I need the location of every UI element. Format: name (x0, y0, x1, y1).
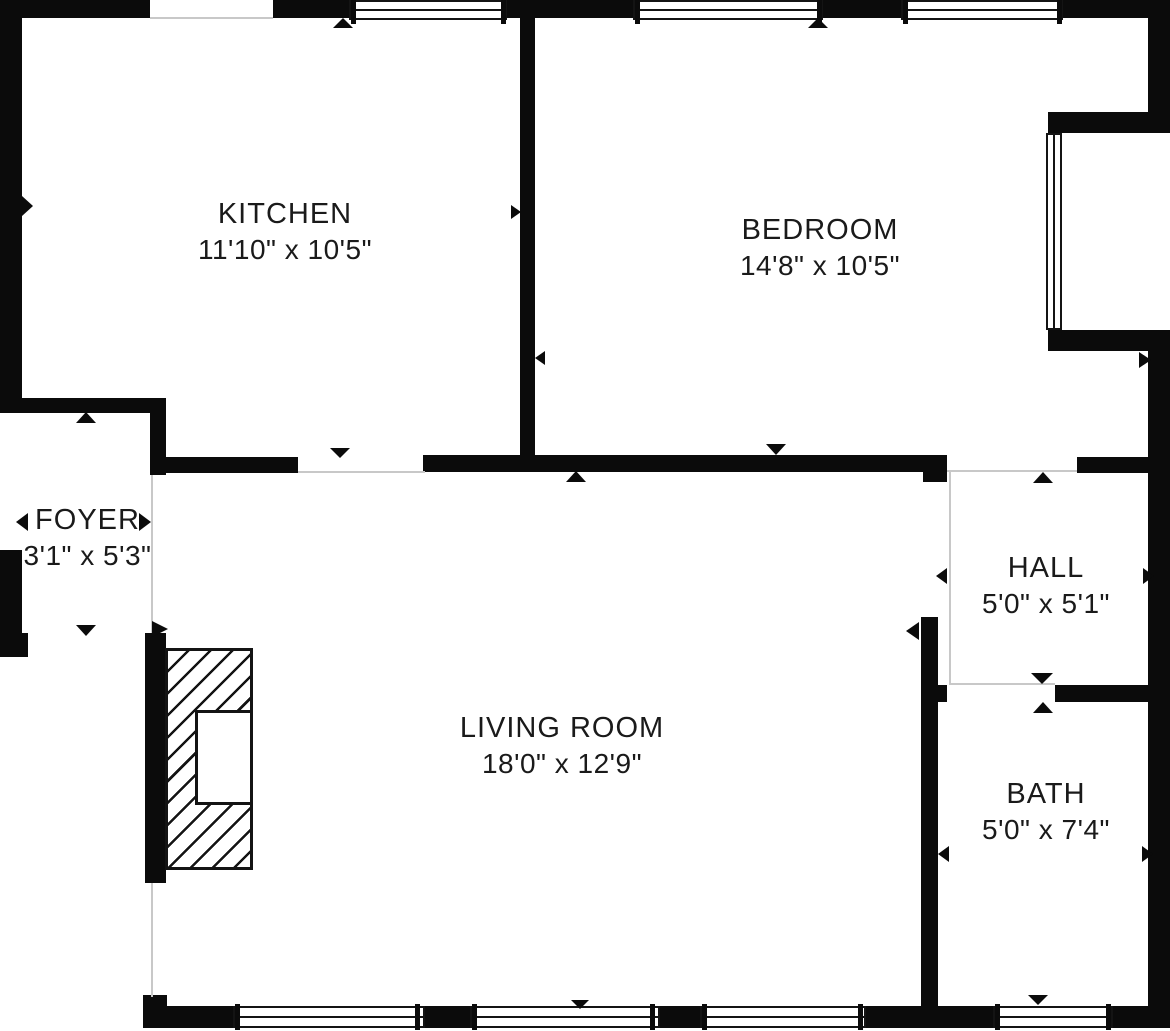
window-post (235, 1004, 240, 1030)
room-label-bedroom: BEDROOM 14'8" x 10'5" (670, 212, 970, 284)
wall-top-1 (0, 0, 150, 18)
boundary-top-gap (150, 17, 273, 19)
wall-kitchen-bedroom-divider (520, 18, 535, 455)
room-label-hall: HALL 5'0" x 5'1" (946, 550, 1146, 622)
threshold-kitchen-living (298, 471, 425, 473)
living-room-dimensions: 18'0" x 12'9" (412, 746, 712, 782)
window-post (415, 1004, 420, 1030)
living-window-2 (470, 1006, 660, 1028)
wall-bath-west (921, 617, 938, 1008)
door-marker-down-icon (766, 444, 786, 455)
foyer-dimensions: 3'1" x 5'3" (0, 538, 175, 574)
door-marker-left-icon (906, 622, 919, 640)
wall-bedroom-bottom-stub (923, 472, 947, 482)
wall-foyer-top (0, 398, 166, 413)
bedroom-window-left (633, 0, 823, 20)
wall-hall-top (1077, 457, 1148, 473)
door-marker-down-icon (1031, 673, 1053, 684)
wall-bottom-4 (866, 1006, 993, 1028)
room-label-bath: BATH 5'0" x 7'4" (946, 776, 1146, 848)
window-mullion (635, 9, 821, 11)
door-marker-up-icon (1033, 472, 1053, 483)
wall-bottom-2 (425, 1006, 470, 1028)
wall-top-2 (273, 0, 349, 18)
door-marker-up-icon (333, 18, 353, 28)
window-post (1057, 0, 1062, 24)
wall-bottom-5 (1113, 1006, 1170, 1028)
window-mullion (351, 9, 505, 11)
door-marker-up-icon (1033, 702, 1053, 713)
door-marker-right-icon (152, 621, 168, 637)
window-post (501, 0, 506, 24)
bath-window (993, 1006, 1113, 1028)
door-marker-up-icon (76, 412, 96, 423)
door-marker-right-icon (1139, 352, 1151, 368)
wall-top-3 (507, 0, 633, 18)
room-label-kitchen: KITCHEN 11'10" x 10'5" (135, 196, 435, 268)
room-label-living-room: LIVING ROOM 18'0" x 12'9" (412, 710, 712, 782)
wall-bay-top (1048, 112, 1170, 133)
door-marker-right-icon (22, 196, 33, 216)
floor-plan: KITCHEN 11'10" x 10'5" BEDROOM 14'8" x 1… (0, 0, 1170, 1031)
kitchen-name: KITCHEN (135, 196, 435, 232)
living-window-3 (700, 1006, 866, 1028)
window-mullion (472, 1016, 658, 1018)
window-mullion (702, 1016, 864, 1018)
door-marker-right-icon (511, 205, 521, 219)
wall-bottom-3 (660, 1006, 700, 1028)
bedroom-window-right (901, 0, 1063, 20)
bedroom-name: BEDROOM (670, 212, 970, 248)
door-marker-down-icon (571, 1000, 589, 1009)
fireplace-firebox (195, 710, 253, 805)
door-marker-up-icon (566, 471, 586, 482)
door-marker-down-icon (330, 448, 350, 458)
living-window-1 (233, 1006, 425, 1028)
window-mullion (995, 1016, 1111, 1018)
wall-bath-west-stub (938, 685, 947, 702)
room-label-foyer: FOYER 3'1" x 5'3" (0, 502, 175, 574)
hall-name: HALL (946, 550, 1146, 586)
wall-bottom-1 (167, 1006, 233, 1028)
window-post (702, 1004, 707, 1030)
bedroom-bay-window (1046, 133, 1062, 330)
wall-right-upper (1148, 0, 1170, 112)
hall-dimensions: 5'0" x 5'1" (946, 586, 1146, 622)
wall-left-foyer-foot (0, 633, 28, 657)
wall-bay-bottom (1048, 330, 1170, 351)
wall-bottom-corner-left (143, 995, 167, 1028)
foyer-name: FOYER (0, 502, 175, 538)
bath-dimensions: 5'0" x 7'4" (946, 812, 1146, 848)
window-mullion (903, 9, 1061, 11)
living-room-name: LIVING ROOM (412, 710, 712, 746)
boundary-living-west (151, 883, 153, 997)
wall-bedroom-bottom (423, 455, 947, 472)
kitchen-window (349, 0, 507, 20)
window-post (903, 0, 908, 24)
window-post (858, 1004, 863, 1030)
wall-hall-bottom (1055, 685, 1148, 702)
wall-kitchen-bottom (150, 457, 298, 473)
window-post (1106, 1004, 1111, 1030)
window-mullion (1053, 135, 1055, 328)
threshold-hall-top (947, 470, 1077, 472)
wall-right-main (1148, 351, 1170, 1028)
dimension-arrow-right-icon (1142, 846, 1153, 862)
dimension-arrow-left-icon (938, 846, 949, 862)
wall-left-upper (0, 18, 22, 413)
door-marker-up-icon (808, 18, 828, 28)
bedroom-dimensions: 14'8" x 10'5" (670, 248, 970, 284)
bath-name: BATH (946, 776, 1146, 812)
wall-living-west (145, 633, 166, 883)
window-post (472, 1004, 477, 1030)
window-post (995, 1004, 1000, 1030)
door-marker-left-icon (535, 351, 545, 365)
window-post (635, 0, 640, 24)
door-marker-down-icon (1028, 995, 1048, 1005)
door-marker-down-icon (76, 625, 96, 636)
wall-top-4 (823, 0, 901, 18)
window-mullion (235, 1016, 423, 1018)
window-post (650, 1004, 655, 1030)
kitchen-dimensions: 11'10" x 10'5" (135, 232, 435, 268)
